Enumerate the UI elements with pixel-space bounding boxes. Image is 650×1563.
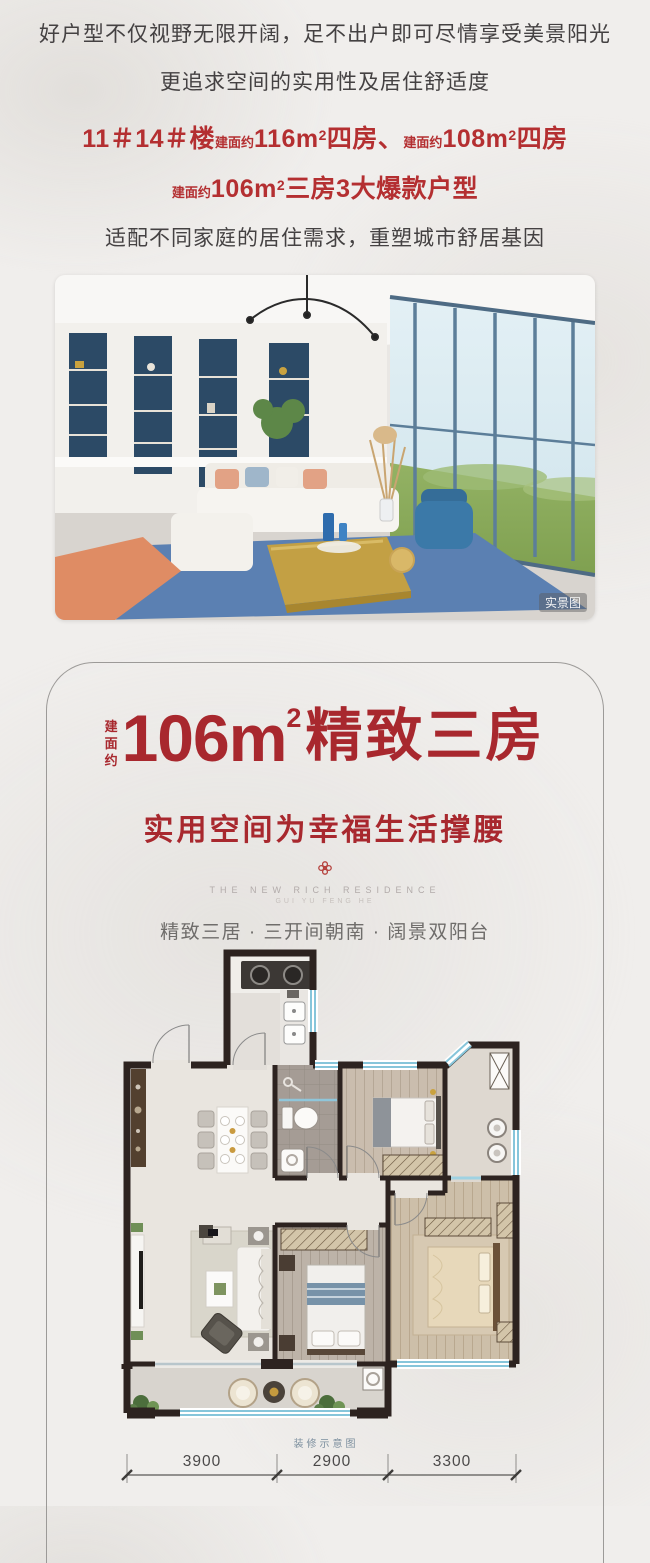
headline-106: 建面约106m2三房3大爆款户型 [0, 169, 650, 205]
card-subtitle: 实用空间为幸福生活撑腰 [47, 805, 603, 849]
brand-name-en: THE NEW RICH RESIDENCE [47, 885, 603, 895]
card-area-sup: 2 [286, 705, 301, 732]
area-label-108: 建面约 [403, 135, 442, 150]
living-room-photo: 实景图 [55, 275, 595, 620]
gold-side-table [390, 548, 414, 572]
sup-108: 2 [508, 127, 516, 143]
bedroom3-wardrobe [281, 1229, 367, 1250]
balcony-floor [127, 1364, 388, 1413]
nightstand-icon [279, 1255, 295, 1271]
master-bedroom [413, 1203, 515, 1342]
area-label-116: 建面约 [215, 135, 254, 150]
watermark-text: 实景图 [545, 595, 581, 610]
dim-2900: 2900 [313, 1453, 351, 1470]
dimension-line: 3900 2900 3300 [122, 1453, 521, 1483]
plan-caption: 装修示意图 [294, 1437, 359, 1450]
intro-line-1: 好户型不仅视野无限开阔，足不出户即可尽情享受美景阳光 [0, 18, 650, 48]
entry-cabinet [131, 1069, 146, 1167]
master-headboard [493, 1243, 500, 1331]
tv-icon [139, 1251, 143, 1309]
toilet-icon [282, 1107, 293, 1129]
card-area-label: 建面约 [105, 719, 120, 770]
dim-3900: 3900 [183, 1453, 221, 1470]
card-title-row: 建面约 106m 2 精致三房 [47, 705, 603, 771]
floor-plan-svg: 装修示意图 3900 2900 3300 [95, 935, 555, 1495]
floor-plan: 装修示意图 3900 2900 3300 [95, 935, 555, 1500]
living-room-photo-art: 实景图 [55, 275, 595, 620]
suffix-106: 三房3大爆款户型 [285, 175, 478, 203]
brand-logo: THE NEW RICH RESIDENCE GUI YU FENG HE [47, 861, 603, 905]
flower-icon [318, 861, 332, 875]
card-title: 精致三房 [305, 705, 545, 767]
area-value-116: 116m [254, 125, 319, 153]
master-wardrobe [425, 1218, 491, 1236]
headline-building: 11＃14＃楼 [82, 125, 215, 153]
area-label-106: 建面约 [172, 185, 211, 200]
photo-watermark: 实景图 [539, 593, 587, 612]
card-area-value: 106m [122, 705, 287, 771]
dim-3300: 3300 [433, 1453, 471, 1470]
bedroom2 [373, 1089, 443, 1176]
intro-line-2: 更追求空间的实用性及居住舒适度 [0, 66, 650, 96]
headline-116-108: 11＃14＃楼建面约116m2四房、建面约108m2四房 [0, 119, 650, 155]
sup-116: 2 [319, 127, 327, 143]
area-value-108: 108m [442, 125, 508, 153]
brand-name-pinyin: GUI YU FENG HE [47, 898, 603, 905]
area-value-106: 106m [211, 175, 277, 203]
sup-106: 2 [277, 177, 285, 193]
bed2-wardrobe [383, 1155, 443, 1176]
intro-line-5: 适配不同家庭的居住需求，重塑城市舒居基因 [0, 222, 650, 252]
suffix-108: 四房 [517, 125, 568, 153]
bath-sink-icon [281, 1149, 304, 1172]
suffix-116: 四房、 [327, 125, 404, 153]
